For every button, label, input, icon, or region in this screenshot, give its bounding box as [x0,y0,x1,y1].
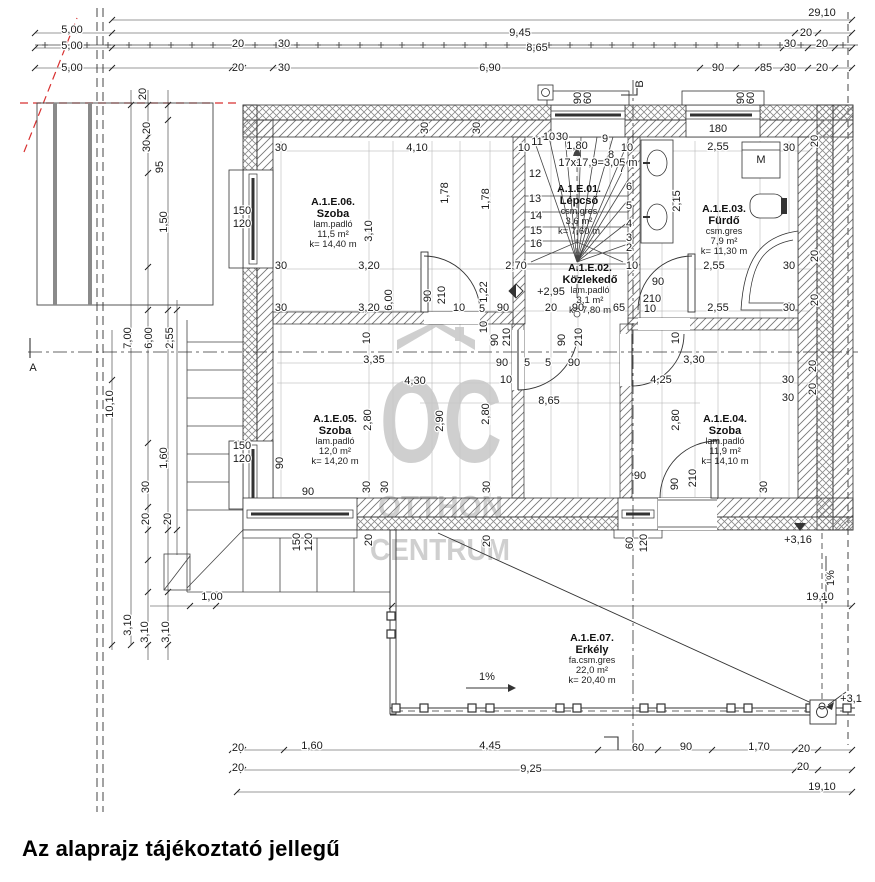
dimension-label: 2,55 [707,141,728,153]
dimension-label: 30 [783,302,795,314]
room-label: lam.padló [315,436,354,446]
dimension-label: 4,45 [479,740,500,752]
dimension-label: 2,55 [707,302,728,314]
room-label: fa.csm.gres [569,655,616,665]
dimension-label: 30 [275,142,287,154]
dimension-label: 180 [709,123,727,135]
dimension-label: 1,78 [480,188,492,209]
dimension-label: 90 [669,478,681,490]
dimension-label: 30 [782,374,794,386]
room-label: A.1.E.02. [568,262,612,274]
dimension-label: 30 [419,122,431,134]
stair-tread-number: 12 [529,168,541,180]
dimension-label: 90 [680,741,692,753]
dimension-label: 2,80 [670,409,682,430]
dimension-label: 60 [745,92,757,104]
floor-plan-page: OC OTTHON CENTRUM [0,0,875,882]
dimension-label: 20 [809,250,821,262]
dimension-label: 30 [275,260,287,272]
stair-tread-number: 6 [626,181,632,193]
dimension-label: 210 [501,328,513,346]
dimension-label: 90 [274,457,286,469]
dimension-label: 20 [140,513,152,525]
dimension-label: 5,00 [61,40,82,52]
dimension-label: 90 [422,290,434,302]
dimension-label: 4,25 [650,374,671,386]
room06-door [421,252,480,324]
slope-label: 1% [825,570,837,586]
dimension-label: 30 [379,481,391,493]
dimension-label: 6,90 [479,62,500,74]
room04-window [614,498,662,538]
dimension-label: 10 [644,303,656,315]
dimension-label: 17x17,9=3,05 m [558,157,637,169]
dimension-label: 120 [233,453,251,465]
dimension-label: 19,10 [808,781,836,793]
dimension-label: 10 [453,302,465,314]
dimension-label: 5 [545,357,551,369]
dimension-label: 30 [783,142,795,154]
dimension-label: 1,22 [478,281,490,302]
dimension-label: 20 [363,534,375,546]
dimension-label: 1,78 [439,182,451,203]
dimension-label: 20 [232,38,244,50]
stair-tread-number: 16 [530,238,542,250]
room-label: A.1.E.01. [557,183,601,195]
dimension-label: 120 [233,218,251,230]
stair-tread-number: 5 [626,200,632,212]
dimension-label: 3,10 [122,614,134,635]
dimension-label: 20 [809,135,821,147]
dimension-label: 6,00 [383,289,395,310]
dimension-label: 20 [481,535,493,547]
dimension-label: 1,80 [566,140,587,152]
dimension-label: 10 [626,260,638,272]
section-marker-a: A [29,362,37,374]
dimension-label: 3,20 [358,302,379,314]
dimension-label: 20 [141,122,153,134]
dimension-label: 2,80 [480,403,492,424]
dimension-label: 3,30 [683,354,704,366]
dimension-label: 1,70 [748,741,769,753]
dimension-label: 2,15 [671,190,683,211]
dimension-label: 20 [798,743,810,755]
dimension-label: 120 [638,534,650,552]
dimension-label: 7,00 [122,327,134,348]
dimension-label: 20 [807,383,819,395]
dimension-label: 90 [302,486,314,498]
dimension-label: 4,10 [406,142,427,154]
dimension-label: 20 [816,62,828,74]
dimension-label: 10 [518,142,530,154]
room-label: A.1.E.07. [570,632,614,644]
dimension-label: 90 [496,357,508,369]
dimension-label: 5,00 [61,62,82,74]
dimension-label: 8,65 [526,42,547,54]
dimension-label: 2,55 [703,260,724,272]
room-label: lam.padló [705,436,744,446]
dimension-label: 20 [545,302,557,314]
dimension-label: 20 [800,27,812,39]
dimension-label: 30 [278,38,290,50]
dimension-label: 3,10 [363,220,375,241]
dimension-label: 2,70 [505,260,526,272]
dimension-label: 30 [784,62,796,74]
dimension-label: 5,00 [61,24,82,36]
disclaimer-text: Az alaprajz tájékoztató jellegű [22,836,340,862]
dimension-label: 1,60 [158,447,170,468]
room-label: A.1.E.05. [313,413,357,425]
dimension-label: 85 [760,62,772,74]
stair-tread-number: 13 [529,193,541,205]
dimension-label: 30 [784,38,796,50]
dimension-label: 2,80 [362,409,374,430]
stair-tread-number: 14 [530,210,542,222]
dimension-label: 150 [233,440,251,452]
room-label: k= 7,80 m [569,305,611,316]
dimension-label: 1,50 [158,211,170,232]
dimension-label: 20 [232,762,244,774]
dimension-label: 2,90 [434,410,446,431]
stair-tread-number: 11 [531,136,542,148]
stair-tread-number: 7 [619,163,625,175]
dimension-label: 29,10 [808,7,836,19]
left-annex-roof [37,103,213,305]
dimension-label: 30 [481,481,493,493]
dimension-label: 210 [573,328,585,346]
dimension-label: 20 [816,38,828,50]
dimension-label: 20 [162,513,174,525]
dimension-label: 20 [232,62,244,74]
dimension-label: 95 [154,161,166,173]
floor-plan-canvas: OC OTTHON CENTRUM [0,0,875,882]
dimension-label: 20 [797,761,809,773]
dimension-label: 19,10 [806,591,834,603]
railing-posts [387,612,851,712]
dimension-label: 210 [687,469,699,487]
dimension-label: 210 [436,286,448,304]
stair-tread-number: 4 [626,218,632,230]
dimension-label: 30 [782,392,794,404]
toilet [750,194,784,218]
dimension-label: 30 [140,481,152,493]
dimension-label: 10 [543,131,555,143]
dimension-label: 90 [489,334,501,346]
dimension-label: 30 [758,481,770,493]
room-label: k= 14,40 m [309,239,356,250]
dimension-label: 10,10 [104,390,116,418]
dimension-label: 20 [809,294,821,306]
room-label: A.1.E.06. [311,196,355,208]
dimension-label: 60 [582,92,594,104]
dimension-label: 9,25 [520,763,541,775]
dimension-label: 20 [232,742,244,754]
room-label: lam.padló [570,285,609,295]
room-label: k= 14,20 m [311,456,358,467]
dimension-label: 20 [137,88,149,100]
dimension-label: 150 [291,533,303,551]
dimension-label: 90 [497,302,509,314]
stair-tread-number: 9 [602,133,608,145]
dimension-label: 30 [278,62,290,74]
dimension-label: 60 [624,537,636,549]
room-label: k= 20,40 m [568,675,615,686]
dimension-label: 10 [478,321,490,333]
room-label: csm.gres [706,226,743,236]
dimension-label: 65 [613,302,625,314]
dimension-label: 30 [556,131,568,143]
bathroom-door [638,254,695,330]
dimension-label: 10 [621,142,633,154]
dimension-label: 90 [634,470,646,482]
washing-machine-label: M [756,154,765,166]
dimension-label: 3,10 [139,621,151,642]
room05-corner-window [243,498,357,538]
dimension-label: 10 [500,374,512,386]
room-label: k= 7,60 m [558,226,600,237]
room-label: A.1.E.03. [702,203,746,215]
dimension-label: 8,65 [538,395,559,407]
slope-arrow-right [508,684,516,692]
dimension-label: 3,20 [358,260,379,272]
dimension-label: 30 [361,481,373,493]
dimension-label: 20 [807,360,819,372]
dimension-label: 30 [783,260,795,272]
dimension-label: 5 [479,303,485,315]
dimension-label: 90 [652,276,664,288]
dimension-label: 6,00 [143,327,155,348]
room-label: lam.padló [313,219,352,229]
dimension-label: 2,55 [164,327,176,348]
elevation-mark: +3,1 [840,693,862,705]
dimension-label: 5 [524,357,530,369]
dimension-label: 30 [141,140,153,152]
stair-tread-number: 2 [626,242,632,254]
room-label: k= 11,30 m [701,246,748,257]
dimension-label: 3,10 [160,621,172,642]
dimension-label: 10 [361,332,373,344]
room-label: A.1.E.04. [703,413,747,425]
section-marker-b: B [634,80,646,87]
dimension-label: 30 [471,122,483,134]
dimension-label: 90 [556,334,568,346]
room-labels-layer: A.1.E.06.Szobalam.padló11,5 m²k= 14,40 m… [309,183,748,686]
dimension-label: 90 [712,62,724,74]
dimension-label: 3,35 [363,354,384,366]
dimension-label: 150 [233,205,251,217]
slope-label: 1% [479,671,495,683]
dimension-label: 1,00 [201,591,222,603]
dimension-label: 90 [568,357,580,369]
dimension-label: 4,30 [404,375,425,387]
dimension-label: 60 [632,742,644,754]
dimension-label: 120 [303,533,315,551]
elevation-mark: +3,16 [784,534,812,546]
slope-line [438,533,818,706]
room-label: k= 14,10 m [701,456,748,467]
dimension-label: 30 [275,302,287,314]
elevation-mark: +2,95 [537,286,565,298]
stair-tread-number: 8 [608,149,614,161]
stair-tread-number: 15 [530,225,542,237]
dimension-label: 9,45 [509,27,530,39]
dimension-label: 1,60 [301,740,322,752]
dimension-label: 10 [670,332,682,344]
room-label: csm.gres [561,206,598,216]
